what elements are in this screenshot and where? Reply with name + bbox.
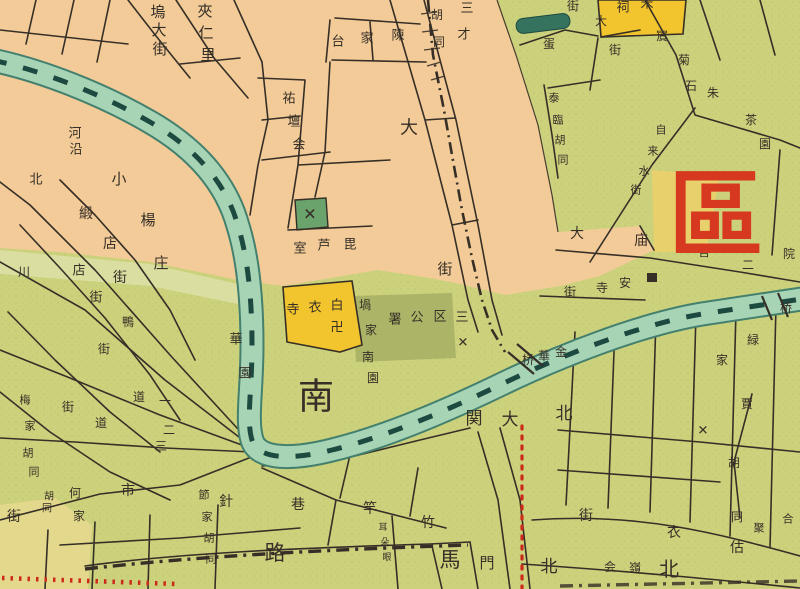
street-dao-b: 道	[95, 416, 107, 430]
street-chuan: 川	[18, 265, 30, 279]
street-ansijie: 街	[564, 285, 576, 299]
street-zhuganxiang: 竹	[421, 515, 435, 531]
street-dianjie: 店	[72, 264, 85, 279]
big-lu: 路	[265, 541, 286, 565]
street-meijiahutong: 梅	[20, 393, 31, 407]
big-bei: 北	[659, 557, 679, 581]
block-nanyuan: 園	[367, 371, 379, 385]
alley-tiny: 眼	[382, 552, 391, 563]
street-binjushi: 石	[685, 79, 697, 93]
gate-men: 門	[479, 554, 494, 572]
big-ma: 馬	[440, 548, 461, 572]
street-san: 三	[155, 439, 167, 453]
street-duandianjie: 緞	[79, 206, 93, 222]
district-qu: 區	[668, 161, 763, 271]
street-zilaishuijie: 水	[639, 165, 650, 178]
block-chayuan: 園	[759, 137, 771, 151]
street-jiahutong: 賈	[741, 397, 753, 411]
city-map: 塢大街夾仁里河沿北小楊庄緞店街店街川鴨陳家台胡同三才祐壇会大街毘芦室白衣寺卍堝家…	[0, 0, 800, 589]
street-tailinhutong: 臨	[553, 114, 564, 127]
block-sancai: 才	[457, 28, 470, 43]
street-jie-ne: 街	[567, 0, 579, 13]
block-linghui: 嶺	[629, 561, 641, 575]
block-lujia: 緑	[747, 332, 759, 347]
street-tailinhutong: 泰	[549, 91, 560, 105]
street-wudajie: 大	[151, 21, 166, 39]
street-ya: 鴨	[122, 315, 134, 329]
street-zhenshijie: 街	[7, 509, 21, 525]
block-youtanhui: 壇	[287, 114, 300, 130]
street-dianjie: 街	[89, 291, 102, 306]
label-zhu: 朱	[707, 86, 719, 100]
street-hutong-left: 同	[42, 503, 52, 515]
street-binjushi: 菊	[678, 53, 690, 67]
street-dajie-ne: 街	[609, 43, 621, 57]
street-er: 二	[163, 423, 175, 437]
temple-baiyisi: 白	[330, 298, 343, 314]
block-chenjiatai: 台	[331, 35, 344, 50]
street-zhenshijie: 針	[219, 494, 233, 510]
street-wudajie: 街	[152, 40, 167, 58]
street-jiejiahutong: 節	[199, 488, 210, 502]
bridge-jinhuaqiao: 華	[538, 349, 550, 363]
street-zhuganxiang: 竿	[363, 501, 377, 517]
street-ansijie: 安	[619, 275, 631, 290]
street-tailinhutong: 同	[558, 154, 569, 167]
street-duandianjie: 街	[113, 270, 127, 286]
alley-tiny: 耳	[378, 522, 387, 533]
bridge-jinhuaqiao: 桥	[522, 353, 534, 367]
block-linghui: 会	[604, 560, 616, 574]
map-canvas: 塢大街夾仁里河沿北小楊庄緞店街店街川鴨陳家台胡同三才祐壇会大街毘芦室白衣寺卍堝家…	[0, 0, 800, 589]
street-meijiahutong: 胡	[23, 446, 34, 460]
block-guojia: 堝	[359, 298, 371, 312]
block-chenjiatai: 家	[360, 31, 373, 47]
street-heyan: 河	[68, 127, 81, 142]
street-jie-a: 街	[98, 342, 110, 356]
street-guyijie: 衣	[667, 525, 681, 541]
street-hejia: 何	[69, 486, 81, 500]
street-bei: 北	[29, 173, 42, 188]
street-heyan: 沿	[69, 143, 82, 158]
street-jiahutong: 胡	[728, 456, 740, 470]
street-zhenshijie: 市	[121, 482, 135, 499]
street-guyijie: 街	[579, 508, 593, 524]
block-pilushi: 芦	[317, 239, 330, 254]
block-huayuan: 華	[229, 333, 242, 348]
block-heju: 聚	[754, 522, 765, 535]
x-mark-green: ✕	[303, 205, 316, 224]
block-jiarenli: 仁	[198, 24, 213, 42]
swastika-mark: 卍	[330, 321, 343, 336]
office-district3: 署	[388, 313, 401, 328]
street-jiejiahutong: 家	[202, 510, 213, 524]
street-zilaishuijie: 来	[648, 145, 659, 158]
place-damiao: 大	[570, 226, 584, 242]
block-youtanhui: 会	[292, 138, 305, 153]
street-meijiahutong: 同	[29, 466, 40, 479]
block-pilushi: 毘	[343, 238, 356, 253]
label-dan: 蛋	[543, 37, 555, 51]
office-district3: 区	[433, 310, 446, 325]
temple-ci: 祠	[616, 1, 629, 16]
street-guyijie: 估	[730, 540, 744, 556]
block-pilushi: 室	[293, 241, 306, 257]
street-jie-b: 街	[62, 400, 74, 414]
block-heju: 合	[783, 512, 794, 526]
street-hutong-top: 同	[433, 35, 445, 49]
bridge-east: 桥	[780, 301, 792, 315]
block-youtanhui: 祐	[282, 92, 295, 107]
street-jiahutong: 同	[731, 510, 743, 524]
street-duandianjie: 店	[103, 236, 117, 252]
block-lujia: 家	[716, 352, 728, 367]
street-xiaoyangzhuang: 小	[111, 170, 126, 188]
block-jiarenli: 夾	[197, 2, 212, 20]
street-hutong-top: 胡	[431, 8, 443, 22]
temple-baiyisi: 衣	[308, 300, 321, 316]
block-sancai: 三	[460, 2, 473, 17]
street-tailinhutong: 胡	[555, 133, 566, 147]
building-mark	[647, 273, 657, 282]
office-district3: 公	[410, 311, 423, 326]
street-dao-a: 道	[133, 390, 145, 404]
alley-tiny: 朵	[380, 537, 389, 548]
temple-baiyisi: 寺	[286, 303, 299, 318]
place-beidaguan: 大	[502, 410, 519, 430]
office-district3: 三	[455, 311, 468, 326]
block-huayuan: 園	[238, 367, 251, 382]
block-nanyuan: 南	[362, 349, 374, 364]
street-xiaoyangzhuang: 楊	[140, 211, 155, 229]
block-jiarenli: 里	[200, 46, 215, 64]
bridge-jinhuaqiao: 金	[555, 344, 567, 359]
block-chenjiatai: 陳	[391, 29, 404, 44]
street-hutong-left: 胡	[44, 490, 54, 503]
street-zhuganxiang: 巷	[291, 497, 305, 513]
street-jiejiahutong: 同	[206, 553, 217, 566]
street-binjushi: 賔	[656, 29, 668, 43]
place-beidaguan: 関	[466, 409, 483, 429]
temple-song: 宋	[640, 0, 653, 12]
street-xiaoyangzhuang: 庄	[153, 254, 168, 272]
big-nan: 南	[298, 377, 334, 418]
place-beidaguan: 北	[556, 404, 573, 424]
street-ansijie: 寺	[596, 281, 608, 295]
street-yi: 一	[159, 394, 171, 408]
block-guojia: 家	[365, 322, 377, 337]
street-jie: 街	[437, 260, 452, 278]
street-zilaishuijie: 街	[631, 183, 642, 197]
street-wudajie: 塢	[150, 3, 165, 21]
x-mark-mid: ✕	[458, 336, 469, 351]
block-chayuan: 茶	[745, 112, 757, 127]
street-jiejiahutong: 胡	[204, 531, 215, 545]
label-yuan: 院	[783, 247, 795, 261]
street-dajie-ne: 大	[595, 14, 607, 28]
street-zilaishuijie: 自	[656, 124, 667, 137]
place-damiao: 庙	[634, 233, 648, 249]
gate-bei: 北	[541, 557, 558, 577]
street-hejia: 家	[73, 508, 85, 523]
x-mark-right: ✕	[698, 424, 709, 439]
street-da: 大	[400, 118, 418, 139]
street-meijiahutong: 家	[25, 419, 36, 433]
